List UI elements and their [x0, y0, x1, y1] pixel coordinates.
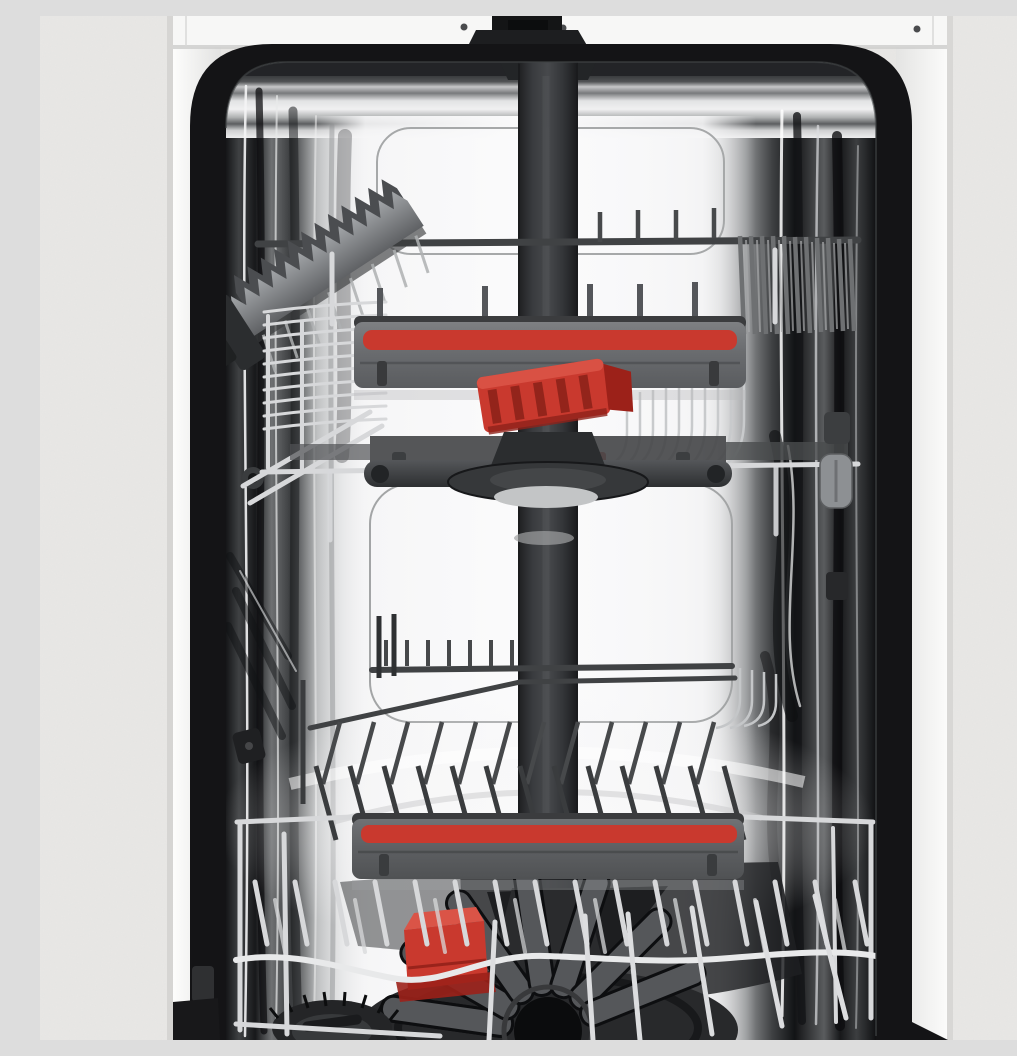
lower-handle-red-stripe	[361, 825, 737, 843]
screw	[914, 26, 921, 33]
detergent-red-cap	[396, 907, 496, 1002]
screw	[461, 24, 468, 31]
tub-interior	[179, 60, 876, 1040]
upper-handle-red-stripe	[363, 330, 737, 350]
dishwasher-product-photo: Open slimline dishwasher seen from the f…	[40, 16, 1017, 1040]
lower-basket-handle	[352, 813, 744, 879]
